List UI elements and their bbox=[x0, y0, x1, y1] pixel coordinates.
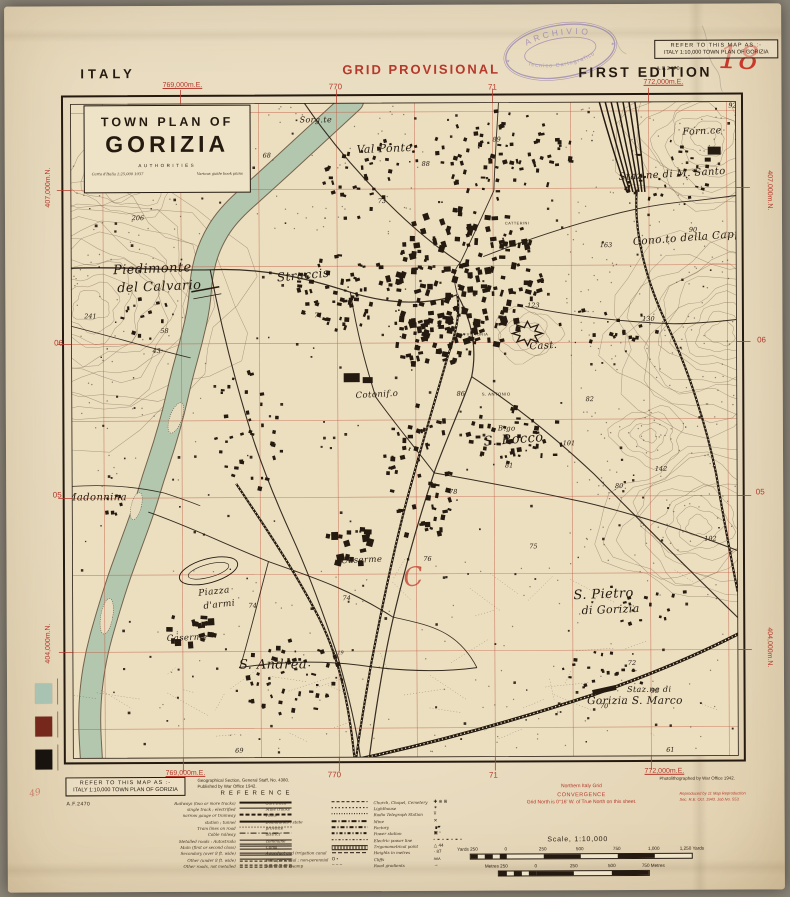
map-place-label: S. Andrea bbox=[239, 657, 307, 672]
legend-symbol-path-icon bbox=[332, 814, 368, 815]
publisher-line2: Published by War Office 1942. bbox=[197, 784, 289, 791]
grid-coordinate-label: 404,000m.N. bbox=[45, 609, 53, 679]
legend-symbol-factory-icon: ▗▰ bbox=[434, 824, 462, 830]
scale-tick-label: 250 bbox=[554, 863, 594, 868]
grid-coordinate-label: 05 bbox=[725, 487, 790, 496]
refer-note-box-top: REFER TO THIS MAP AS :- ITALY 1:10,000 T… bbox=[654, 39, 778, 59]
legend-item-label: Cart track bbox=[266, 800, 330, 805]
refer-note-line2: ITALY 1:10,000 TOWN PLAN OF GORIZIA bbox=[69, 787, 181, 793]
legend-symbol-well-icon: O • bbox=[332, 856, 368, 861]
series-reference-bottom: A.F.2470 bbox=[67, 802, 91, 808]
legend-item-label: commune bbox=[266, 838, 330, 843]
reproduction-note: Reproduced by 11 Map Reproduction Sec. R… bbox=[679, 790, 745, 802]
spot-height-label: K.19 bbox=[331, 650, 345, 656]
scale-tick-label: 1,250 Yards bbox=[680, 845, 704, 850]
spot-height-label: 70 bbox=[600, 702, 608, 710]
scale-tick-label: 0 bbox=[486, 846, 526, 851]
legend-symbol-cliff-icon: ʌʌʌ bbox=[434, 855, 462, 860]
legend-item-label: province bbox=[266, 825, 330, 830]
title-line2: GORIZIA bbox=[85, 131, 250, 159]
legend-item-label: Electric power line bbox=[374, 837, 432, 842]
refer-note-line1: REFER TO THIS MAP AS :- bbox=[69, 780, 181, 786]
country-label: ITALY bbox=[80, 67, 135, 82]
title-sources: Carta d'Italia 1:25,000 1937 Various gui… bbox=[85, 172, 250, 177]
spot-height-label: 241 bbox=[83, 312, 96, 320]
grid-coordinate-label: 06 bbox=[727, 335, 790, 344]
map-place-label: S. Pietro bbox=[573, 586, 634, 603]
map-place-label: Caserme bbox=[167, 632, 208, 644]
map-place-label: CATTERINI bbox=[505, 221, 529, 225]
title-line1: TOWN PLAN OF bbox=[85, 115, 250, 130]
legend-symbol-power-icon: ▣ ▫ bbox=[434, 830, 462, 836]
grid-coordinate-label: 769,000m.E. bbox=[147, 82, 217, 90]
refer-note-line2: ITALY 1:10,000 TOWN PLAN OF GORIZIA bbox=[658, 49, 774, 56]
title-source-right: Various guide book plans bbox=[197, 172, 243, 176]
legend-item-label: Main (first or second class) bbox=[124, 845, 236, 850]
grid-coordinate-label: 407,000m.N. bbox=[765, 155, 773, 225]
legend-symbol-canal-icon bbox=[332, 845, 368, 850]
scale-tick-label: 750 Metres bbox=[642, 862, 665, 867]
photolith-note: Photolithographed by War Office 1942. bbox=[659, 776, 734, 781]
spot-height-label: 95 bbox=[651, 687, 659, 695]
scale-tick-label: 500 bbox=[560, 846, 600, 851]
spot-height-label: 78 bbox=[449, 488, 457, 496]
map-place-label: Forn.ce bbox=[681, 125, 722, 138]
legend-item-label: single track ; electrified bbox=[124, 807, 236, 812]
legend-item-label: Trigonometrical point bbox=[374, 844, 432, 849]
spot-height-label: 142 bbox=[655, 465, 667, 473]
legend-item-label: Marsh and swamp bbox=[266, 863, 330, 868]
legend-symbol-mule-icon bbox=[332, 807, 368, 808]
map-place-label: B.go bbox=[497, 424, 516, 432]
legend-item-label: Tram lines on road bbox=[124, 826, 236, 831]
spot-height-label: 123 bbox=[527, 301, 539, 309]
legend-item-label: narrow gauge or tramway bbox=[124, 813, 236, 818]
scale-tick-label: 0 bbox=[516, 863, 556, 868]
map-place-label: di Gorizia bbox=[581, 602, 640, 617]
refer-note-box-bottom: REFER TO THIS MAP AS :- ITALY 1:10,000 T… bbox=[65, 777, 185, 797]
legend-item-label: Railways (two or more tracks) bbox=[124, 800, 236, 805]
legend-symbol-bcomm-icon bbox=[332, 839, 368, 840]
legend-item-label: Boundaries : state bbox=[266, 819, 330, 824]
spot-height-label: 163 bbox=[600, 241, 612, 249]
spot-height-label: 43 bbox=[151, 347, 160, 355]
title-source-left: Carta d'Italia 1:25,000 1937 bbox=[92, 172, 144, 176]
legend-item-label: Radio Telegraph Station bbox=[374, 812, 432, 817]
legend-item-label: Mine bbox=[374, 818, 432, 823]
legend-symbol-bdist-icon bbox=[332, 833, 368, 834]
map-place-label: P.ZA VITTORIA bbox=[455, 333, 488, 337]
legend-item-label: Secondary (over 8 ft. wide) bbox=[124, 851, 236, 856]
scale-tick-label: Metres 250 bbox=[458, 863, 508, 868]
scale-tick-label: Yards 250 bbox=[428, 846, 478, 851]
spot-height-label: 58 bbox=[160, 327, 168, 335]
refer-note-line1: REFER TO THIS MAP AS :- bbox=[658, 42, 774, 49]
grid-coordinate-label: 770 bbox=[299, 770, 369, 779]
legend-item-label: Cable railway bbox=[124, 832, 236, 837]
legend-item-label: Paths bbox=[266, 812, 330, 817]
legend-symbol-bstate-icon bbox=[332, 820, 368, 822]
map-place-label: Val Ponte bbox=[356, 141, 412, 156]
legend-symbol-aqua-icon bbox=[332, 852, 368, 853]
map-place-label: Caserme bbox=[341, 555, 382, 567]
legend-item-label: Cliffs bbox=[374, 856, 432, 861]
legend-item-label: Other roads, not metalled bbox=[124, 864, 236, 869]
map-sheet-paper: Sorg.teVal PontePiedimontedel CalvarioSt… bbox=[4, 3, 785, 892]
grid-coordinate-label: 06 bbox=[24, 338, 94, 347]
legend-item-label: Heights in metres bbox=[374, 850, 432, 855]
legend-symbol-pline-icon bbox=[434, 839, 462, 840]
grid-coordinate-label: 769,000m.E. bbox=[150, 770, 220, 778]
photo-background: Sorg.teVal PontePiedimontedel CalvarioSt… bbox=[0, 0, 790, 897]
legend-symbol-radio-icon: Ŧ bbox=[434, 811, 462, 816]
series-reference-top: A.F.2470 bbox=[656, 67, 680, 73]
spot-height-label: 61 bbox=[666, 746, 674, 754]
grid-coordinate-label: 71 bbox=[457, 82, 527, 91]
scale-tick-label: 750 bbox=[597, 845, 637, 850]
scale-title: Scale, 1:10,000 bbox=[498, 836, 658, 845]
title-authorities: AUTHORITIES bbox=[85, 163, 250, 169]
grid-coordinate-label: 772,000m.E. bbox=[629, 768, 699, 776]
spot-height-label: 206 bbox=[131, 214, 144, 222]
spot-height-label: 86 bbox=[457, 390, 465, 398]
spot-height-label: 130 bbox=[642, 315, 654, 323]
legend-symbol-cart-icon bbox=[332, 801, 368, 802]
legend-symbol-bprov-icon bbox=[332, 826, 368, 828]
legend-item-label: district bbox=[266, 832, 330, 837]
spot-height-label: 76 bbox=[423, 555, 431, 563]
printing-colour-swatch bbox=[35, 683, 52, 703]
legend-symbol-mine-icon: ✕ bbox=[434, 817, 462, 823]
grid-coordinate-label: 772,000m.E. bbox=[628, 79, 698, 87]
spot-height-label: 89 bbox=[492, 136, 500, 144]
repro-line2: Sec. R.E. Oct. 1943. Job No. 553. bbox=[680, 796, 746, 802]
convergence-note: Northern Italy Grid CONVERGENCE Grid Nor… bbox=[507, 783, 655, 808]
spot-height-label: 82 bbox=[586, 395, 594, 403]
grid-coordinate-label: 05 bbox=[22, 490, 92, 499]
spot-height-label: 68 bbox=[263, 152, 271, 160]
spot-height-label: 69 bbox=[235, 747, 243, 755]
scale-tick-label: 1,000 bbox=[634, 845, 674, 850]
scale-tick-label: 250 bbox=[523, 846, 563, 851]
spot-height-label: 101 bbox=[563, 439, 575, 447]
grid-coordinate-label: 404,000m.N. bbox=[765, 612, 773, 682]
legend-item-label: Mule tracks bbox=[266, 806, 330, 811]
spot-height-label: 72 bbox=[628, 659, 636, 667]
map-place-label: Piedimonte bbox=[112, 260, 192, 278]
spot-height-label: 90 bbox=[689, 226, 697, 234]
swatch-bracket-line bbox=[57, 711, 58, 737]
spot-height-label: 71 bbox=[314, 311, 322, 319]
scale-tick-label: 500 bbox=[592, 862, 632, 867]
scale-bar bbox=[470, 852, 693, 859]
legend-symbol-church-icon: ✚ ⊕ ⊞ bbox=[434, 798, 462, 804]
legend-symbol-light-icon: ✶ bbox=[434, 805, 462, 811]
svg-text:✦: ✦ bbox=[506, 58, 511, 65]
convergence-line3: Grid North is 0°16' W. of True North on … bbox=[508, 799, 656, 807]
grid-coordinate-label: 71 bbox=[458, 770, 528, 779]
spot-height-label: 81 bbox=[505, 461, 513, 469]
legend-item-label: Lighthouse bbox=[374, 806, 432, 811]
spot-height-label: 73 bbox=[378, 197, 386, 205]
legend-item-label: station ; tunnel bbox=[124, 819, 236, 824]
legend-item-label: Factory bbox=[374, 825, 432, 830]
legend-item-label: Canal bbox=[266, 844, 330, 849]
spot-height-label: 102 bbox=[704, 535, 716, 543]
legend-item-label: Well, perennial ; non-perennial bbox=[266, 857, 330, 862]
swatch-bracket-line bbox=[57, 678, 58, 704]
reference-title: REFERENCE bbox=[220, 790, 293, 797]
legend-item-label: Aqueduct and irrigation canal bbox=[266, 851, 330, 856]
title-block: TOWN PLAN OF GORIZIA AUTHORITIES Carta d… bbox=[84, 105, 251, 194]
legend-item-label: Other (under 8 ft. wide) bbox=[124, 857, 236, 862]
legend-item-label: Power station bbox=[374, 831, 432, 836]
map-place-label: Staz.ne di bbox=[627, 685, 671, 694]
swatch-bracket-line bbox=[57, 744, 58, 770]
printing-colour-swatch bbox=[35, 749, 52, 769]
spot-height-label: 80 bbox=[615, 482, 623, 490]
legend-item-label: Church, Chapel, Cemetery bbox=[374, 799, 432, 804]
map-place-label: S. ANTONIO bbox=[482, 391, 511, 396]
spot-height-label: 75 bbox=[529, 542, 537, 550]
map-place-label: Cast. bbox=[529, 340, 558, 353]
grid-coordinate-label: 407,000m.N. bbox=[45, 153, 53, 223]
spot-height-label: 88 bbox=[422, 160, 430, 168]
grid-coordinate-label: 770 bbox=[300, 82, 370, 91]
map-place-label: Sorg.te bbox=[300, 115, 333, 124]
printing-colour-swatch bbox=[35, 716, 52, 736]
legend-item-label: Metalled roads : Autostrada bbox=[124, 838, 236, 843]
publisher-note: Geographical Section, General Staff, No.… bbox=[197, 777, 289, 790]
scale-bar bbox=[498, 869, 650, 876]
spot-height-label: 74 bbox=[249, 602, 257, 610]
grid-provisional-label: GRID PROVISIONAL bbox=[342, 63, 500, 79]
spot-height-label: 74 bbox=[342, 594, 350, 602]
legend-symbol-marsh-icon: ~ ~ ~ bbox=[332, 862, 368, 867]
legend-item-label: Road gradients bbox=[374, 863, 432, 868]
